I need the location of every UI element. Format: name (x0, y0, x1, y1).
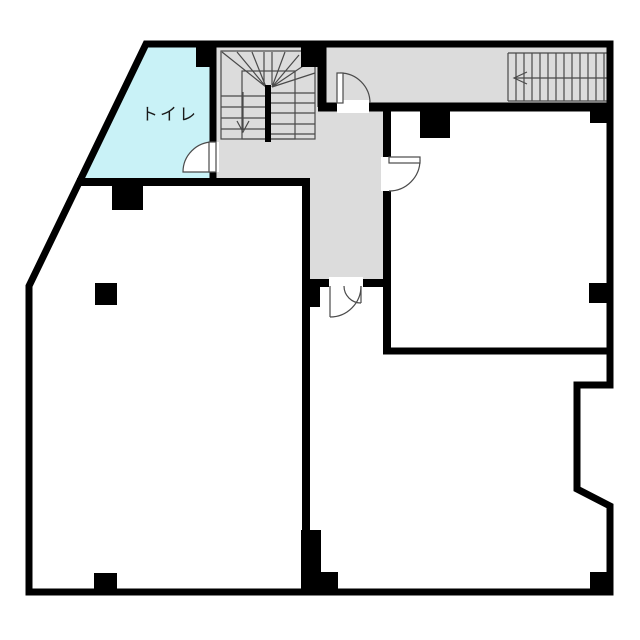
column (590, 572, 612, 592)
door-swing-arc (330, 286, 361, 317)
column (112, 183, 143, 210)
column (95, 283, 117, 305)
column (301, 530, 321, 592)
column (94, 573, 117, 592)
column (589, 283, 610, 303)
door-leaf (209, 142, 216, 172)
center-corridor-area (306, 110, 391, 287)
toilet-label: トイレ (141, 105, 198, 125)
upper-room-door (381, 157, 420, 191)
door-swing-arc (389, 160, 420, 191)
corridor-and-stair-area (216, 44, 613, 287)
column (302, 281, 320, 307)
stair-center-divider (265, 85, 271, 142)
column (301, 42, 322, 67)
column (196, 42, 216, 67)
floor-plan-page: トイレ (0, 0, 640, 640)
door-leaf (337, 73, 343, 103)
door-leaf (389, 157, 420, 163)
corridor-double-door (329, 277, 363, 317)
column (590, 103, 612, 123)
column (321, 572, 338, 592)
column (420, 107, 450, 138)
floor-plan-drawing: トイレ (0, 0, 640, 640)
